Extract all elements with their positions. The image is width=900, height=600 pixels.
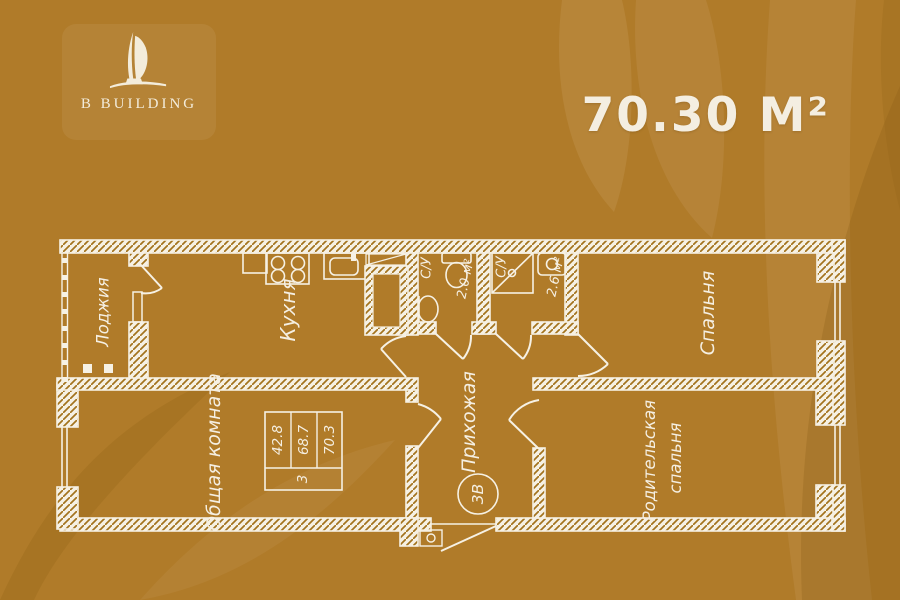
brand-name: B BUILDING [81,96,197,113]
wall-bottom-left [60,518,431,531]
wall-hall-parents [533,448,545,518]
unit-badge-label: 3В [469,484,487,505]
wall-loggia-partition-top [129,253,148,266]
pier-parents-window-bottom [816,485,833,518]
stamp-rooms-count: 3 [295,475,311,484]
wall-bath-bottom3 [532,322,578,334]
pier-bedroom-window-bottom [817,341,834,378]
poster: Лоджия Кухня С/У 2.0 м² С/У 2.6 м² Спаль… [0,0,900,600]
wall-right3 [832,485,845,531]
wall-hall-living-top [406,390,418,402]
pier-parents-window-top [816,390,833,425]
loggia-box-icon [104,364,113,373]
room-label-bedroom: Спальня [697,271,719,356]
parents-label-line2: спальня [666,422,685,493]
brand-logo: B BUILDING [62,24,216,140]
stamp-usable-area: 68.7 [296,425,312,455]
wall-bath-bottom2 [472,322,496,334]
room-label-bathroom2: С/У [495,255,510,277]
wall-entry-stub [400,518,418,546]
wall-bottom-right [496,518,845,531]
pier-bedroom-window-top [817,253,834,282]
wall-bedrooms-divider [533,378,833,390]
room-label-loggia: Лоджия [94,277,113,347]
wall-bath-bottom1 [418,322,436,334]
building-tower-icon [109,32,169,92]
room-label-living: Общая комната [203,373,225,531]
hall-cabinet-icon [365,266,408,335]
parents-label-line1: Родительская [640,400,659,521]
wall-loggia-partition-bottom [129,322,148,383]
room-label-hallway: Прихожая [458,371,480,473]
wall-hall-living-bottom [406,446,418,518]
room-label-kitchen: Кухня [276,279,300,342]
wall-left-pier2 [57,487,78,529]
stamp-living-area: 42.8 [270,425,286,455]
stamp-total-area: 70.3 [322,425,338,455]
loggia-box-icon [83,364,92,373]
wall-top [60,240,845,253]
wall-kitchen-living [57,378,418,390]
room-label-bathroom1: С/У [420,256,435,278]
total-area-title: 70.30 М² [582,88,830,143]
